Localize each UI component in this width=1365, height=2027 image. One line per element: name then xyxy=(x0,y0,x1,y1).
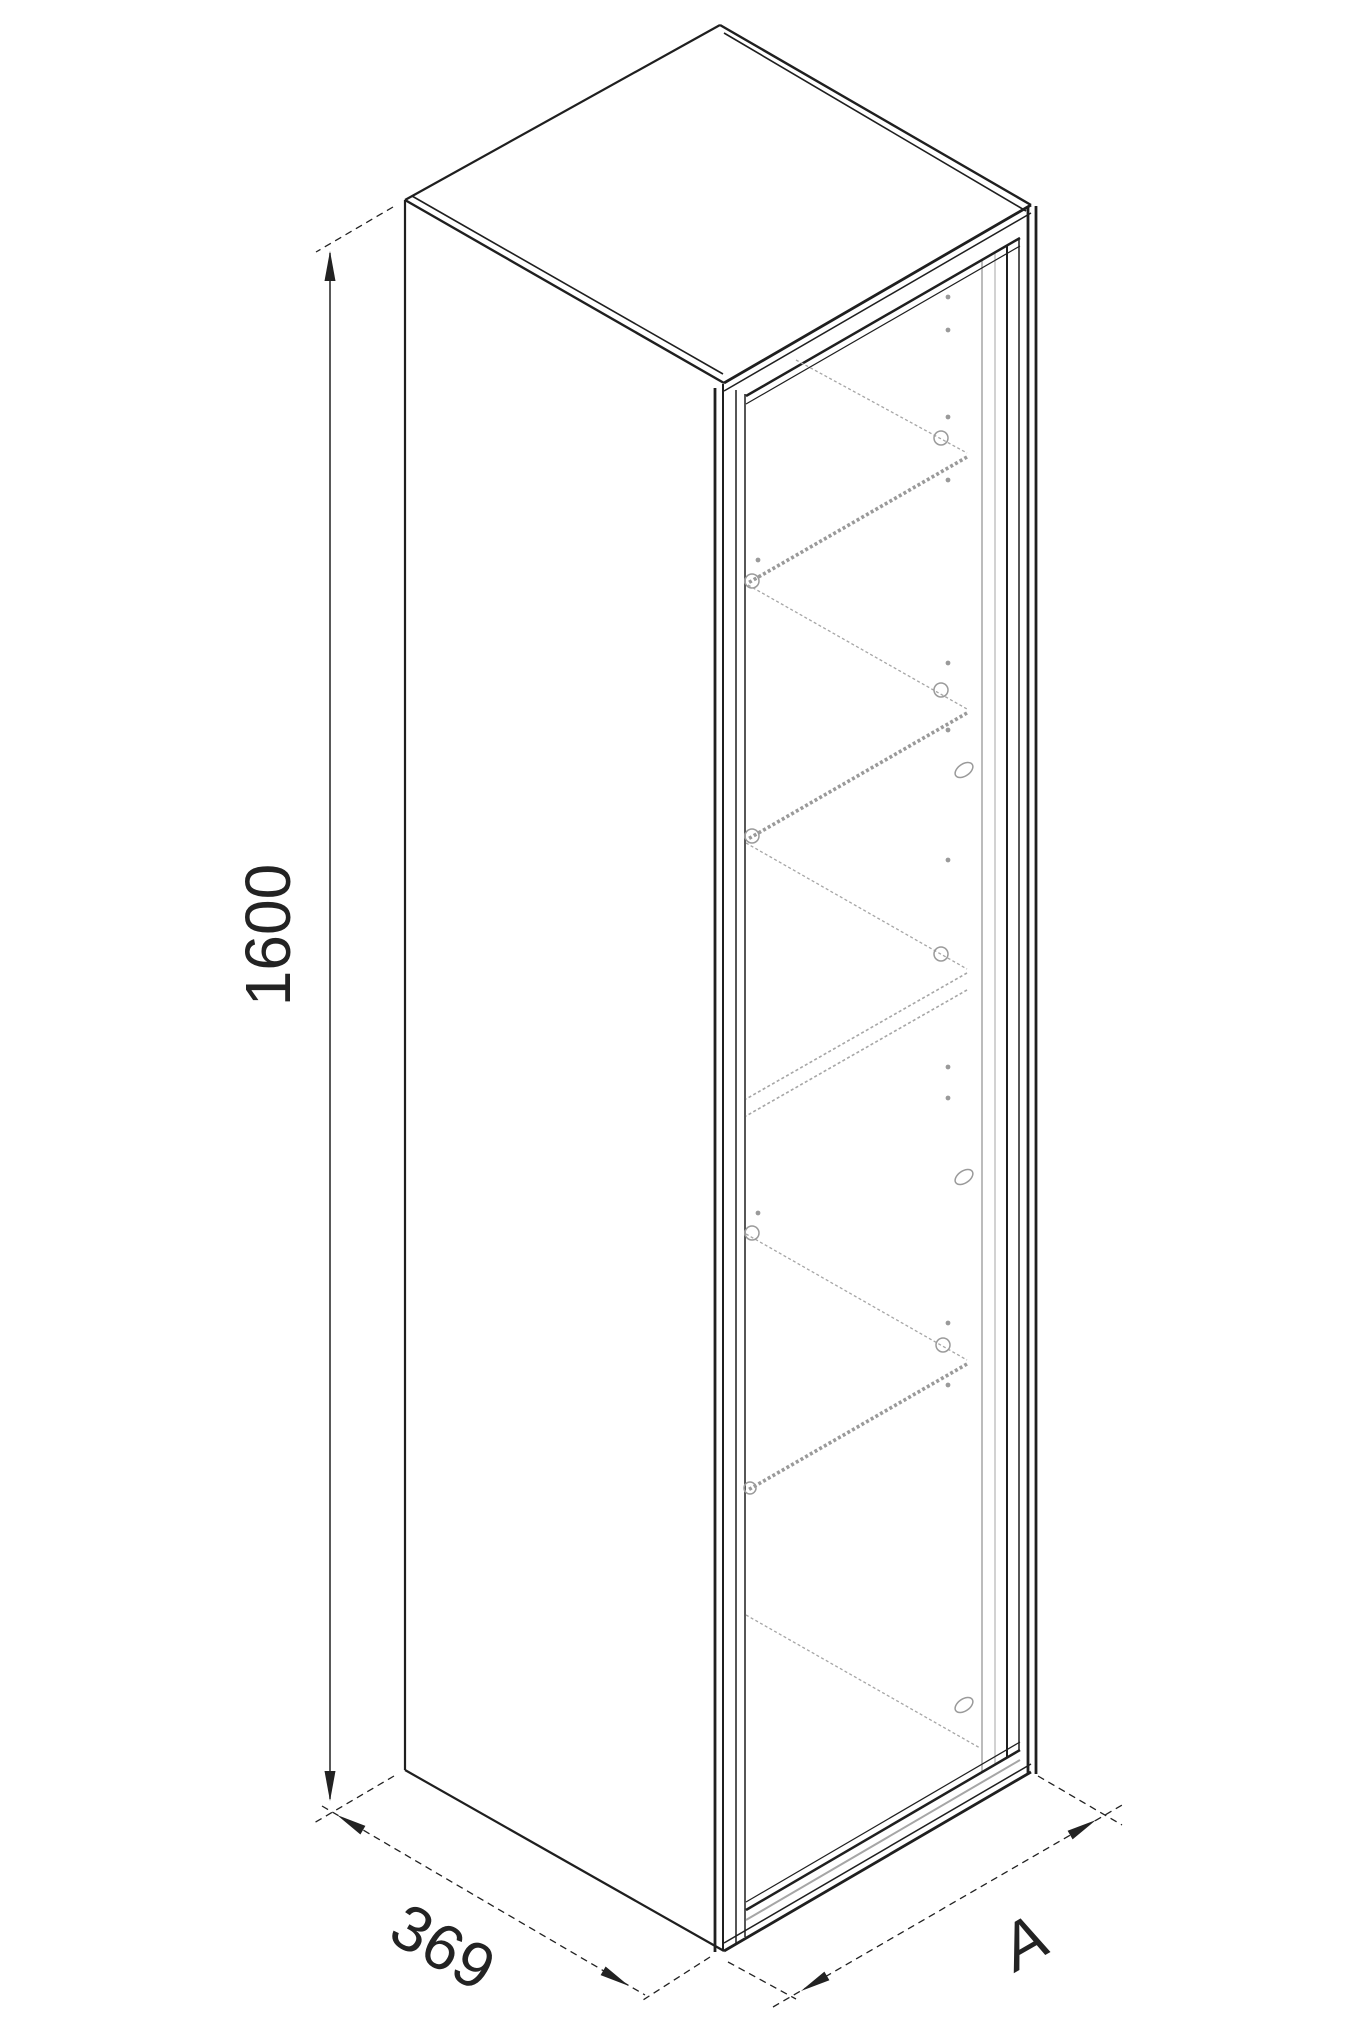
height-dimension: 1600 xyxy=(232,207,394,1823)
drawing-canvas: 1600 369 A xyxy=(0,0,1365,2027)
cabinet-front-face xyxy=(715,205,1036,1952)
shelf-line xyxy=(744,1226,967,1494)
width-dimension: A xyxy=(728,1776,1124,2007)
width-dimension-label: A xyxy=(984,1900,1060,1986)
bottom-panel-line xyxy=(746,1615,980,1748)
depth-dimension-label: 369 xyxy=(379,1889,507,2005)
height-dimension-label: 1600 xyxy=(232,864,304,1006)
fitting-holes xyxy=(952,759,975,1715)
cabinet-left-face xyxy=(405,200,724,1951)
technical-drawing: 1600 369 A xyxy=(0,0,1365,2027)
cabinet xyxy=(405,25,1036,1952)
cabinet-top-face xyxy=(405,25,1031,383)
shelf-pin-holes xyxy=(756,295,951,1388)
shelves xyxy=(744,295,980,1748)
depth-dimension: 369 xyxy=(322,1806,710,2005)
glass-door-frame xyxy=(736,238,1020,1944)
shelf-line xyxy=(746,843,967,1116)
shelf-line xyxy=(745,360,967,588)
shelf-line xyxy=(745,585,967,843)
